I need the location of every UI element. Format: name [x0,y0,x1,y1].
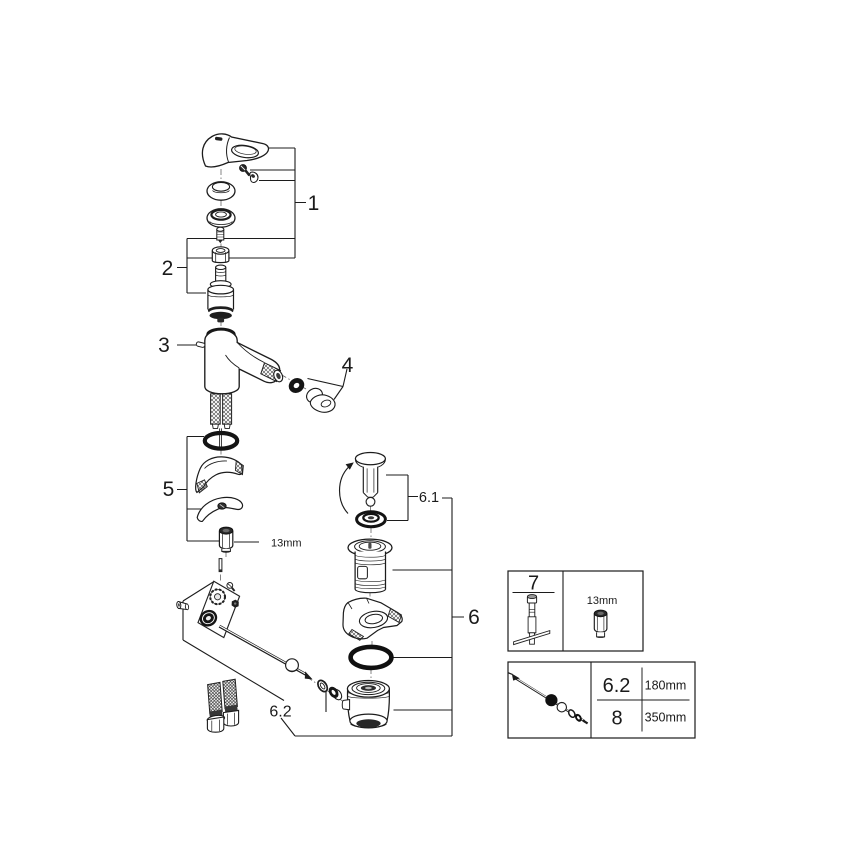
rod-box-row2-part: 8 [611,708,622,730]
cone-fitting [176,601,189,610]
popup-rod [219,626,312,679]
handle-screw [240,165,250,176]
bracket-2 [177,239,295,294]
tool-legend-box: 7 13mm [508,571,643,651]
cartridge [208,265,234,322]
mounting-set [196,457,244,552]
link-pin [219,559,222,572]
rod-box-row2-length: 350mm [645,711,687,725]
callout-label-2: 2 [162,257,174,280]
callout-label-6: 6 [468,606,480,629]
body-shell [205,330,280,394]
plug-seal-washer [357,512,386,527]
supply-hoses [207,679,239,732]
body-pin [196,341,205,347]
drain-plug-assembly [340,453,386,527]
rod-box-row1-length: 180mm [645,679,687,693]
callout-label-1: 1 [308,192,320,215]
popup-rod-assembly [176,559,343,702]
mounting-wedge [196,457,244,493]
tool-box-socket-size: 13mm [587,595,618,607]
exploded-diagram: 1 2 3 4 5 6 6.1 6.2 13mm 7 13mm [0,0,868,868]
dome-ring-upper [207,182,235,200]
bracket-1 [250,148,306,258]
drain-body-assembly [342,539,402,728]
callout-label-5: 5 [163,478,175,501]
callout-label-6-2: 6.2 [269,704,291,721]
popup-plug [355,453,385,507]
rod-seal-nut [327,685,344,701]
hose-right [223,679,239,726]
tool-box-part-no: 7 [528,573,539,595]
dome-ring-lower [207,209,235,227]
handle-plug [250,172,258,183]
knurled-wheel [210,589,225,604]
aerator-assembly [286,375,335,412]
twist-arrow [340,462,354,513]
rod-legend-box: 6.2 180mm 8 350mm [508,662,695,738]
horseshoe-clamp [197,497,242,521]
drain-o-ring [351,647,392,668]
handle-assembly [202,134,268,227]
label-nut-size: 13mm [271,538,302,550]
cartridge-assembly [208,227,234,322]
rod-box-row1-part: 6.2 [603,675,631,697]
mousseur [304,386,335,413]
rod-o-ring [316,679,329,694]
hose-left [207,682,225,732]
callout-label-3: 3 [158,334,170,357]
socket-nut-icon [594,610,607,638]
threaded-shanks [211,394,232,429]
flow-seal-ring [286,375,307,396]
diagram-page: 1 2 3 4 5 6 6.1 6.2 13mm 7 13mm [0,0,868,868]
drain-flange [348,539,392,593]
drain-lower-body [342,681,389,728]
callout-labels: 1 2 3 4 5 6 6.1 6.2 13mm [158,192,480,721]
wedge-gasket [343,598,402,640]
grub-screw [217,227,224,243]
cap-nut [212,247,229,263]
faucet-body [196,329,284,450]
callout-label-4: 4 [342,354,354,377]
callout-label-6-1: 6.1 [419,490,439,506]
shank-nut-13mm [219,527,232,552]
